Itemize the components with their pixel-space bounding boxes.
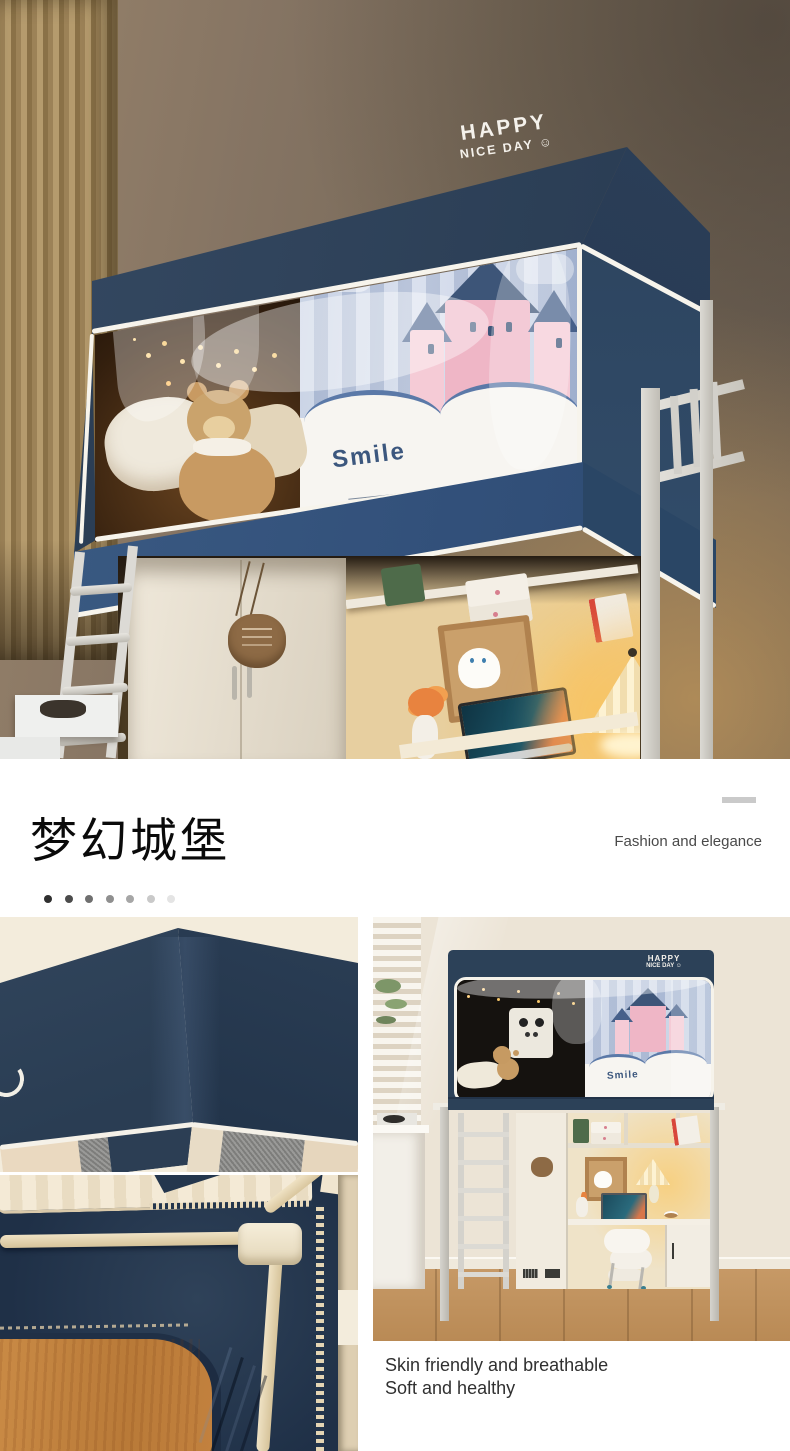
product-detail-page: HAPPY NICE DAY ☺ [0,0,790,1451]
room-shelf-dividers-v [624,1113,628,1145]
panda-face [519,1018,528,1027]
room-ladder-rungs [458,1132,509,1137]
room-laptop [601,1193,647,1222]
pole-corner-joint [238,1223,302,1265]
subtitle: Fashion and elegance [400,833,762,850]
dot-1 [44,895,52,903]
room-castle-curtain: Smile [585,980,711,1100]
room-ladder-rail-r [503,1113,509,1289]
room-smile-text: Smile [607,1069,639,1082]
dark-object [40,700,86,718]
piping-opening-right [577,246,582,472]
dot-5 [126,895,134,903]
frame-post-rear [700,300,713,759]
room-brand-line1: HAPPY [624,954,704,963]
room-vase-flower [576,1197,588,1217]
room-ladder-rail-l [458,1113,464,1289]
sideboard-top [373,1125,429,1133]
zipper-vertical [316,1205,324,1451]
room-cup [664,1211,678,1218]
room-green-book [573,1119,589,1143]
room-photo: HAPPY NICE DAY ☺ [373,917,790,1341]
room-chair-feet [607,1285,612,1289]
smiley-icon: ☺ [538,134,555,150]
hanging-wood-sign [228,614,286,668]
room-tent-brand: HAPPY NICE DAY ☺ [624,954,704,969]
page-title: 梦幻城堡 [30,810,230,871]
room-sheer-drop [552,977,602,1044]
room-brand-line2: NICE DAY ☺ [624,963,704,969]
room-vents [523,1269,538,1278]
post-left [440,1107,449,1321]
room-wardrobe [516,1113,568,1289]
plant-leaves [375,979,401,993]
room-castle-tower [630,1006,666,1052]
corner-white-patch [338,1290,358,1345]
room-cat-art [594,1171,612,1188]
room-teddy [493,1046,511,1064]
room-fairy-lights [467,995,470,998]
record-disc [383,1115,405,1123]
strip-cream-2 [186,1124,223,1172]
dot-3 [85,895,93,903]
corner-sheen [150,937,220,1127]
room-books [671,1115,701,1145]
drawer-knobs [495,590,500,595]
dot-6 [147,895,155,903]
green-calendar [381,563,426,606]
room-cabinet-handle [672,1243,674,1259]
room-box-knobs [604,1126,607,1129]
room-sheer-right [671,980,711,1100]
room-tent-opening: Smile [454,977,714,1103]
wardrobe-handles [232,666,237,700]
room-tent: HAPPY NICE DAY ☺ [448,950,714,1110]
lamp-finial [628,648,637,657]
caption-line2: Soft and healthy [385,1377,608,1400]
room-desk-nook [568,1113,710,1289]
room-chair [604,1229,650,1253]
cat-eyes [470,658,474,663]
teddy-collar [193,438,251,456]
dot-4 [106,895,114,903]
room-lamp-base [649,1185,659,1203]
caption-line1: Skin friendly and breathable [385,1354,608,1377]
closeup-roof-corner-photo [0,917,358,1172]
feature-caption: Skin friendly and breathable Soft and he… [385,1354,608,1400]
wood-grain-lines [0,1175,358,1451]
pagination-dots [44,895,175,903]
sign-text-lines [242,628,272,630]
pole-vertical [256,1253,283,1451]
orange-flower [408,688,444,718]
post-right [710,1107,719,1321]
room-castle-ltower [615,1020,629,1054]
room-wood-sign [531,1157,553,1177]
closeup-frame-zipper-photo [0,1175,358,1451]
dot-7 [167,895,175,903]
sideboard [373,1133,425,1289]
desk-nook [346,556,640,759]
room-tent-bottom-band [448,1097,714,1110]
teddy-muzzle [203,416,235,440]
dot-2 [65,895,73,903]
panda-tapestry [509,1008,553,1058]
hero-photo: HAPPY NICE DAY ☺ [0,0,790,759]
stitch-seam [0,1323,192,1329]
appliance-front [0,737,60,759]
frame-post-front [641,388,660,759]
divider-dash [722,797,756,803]
